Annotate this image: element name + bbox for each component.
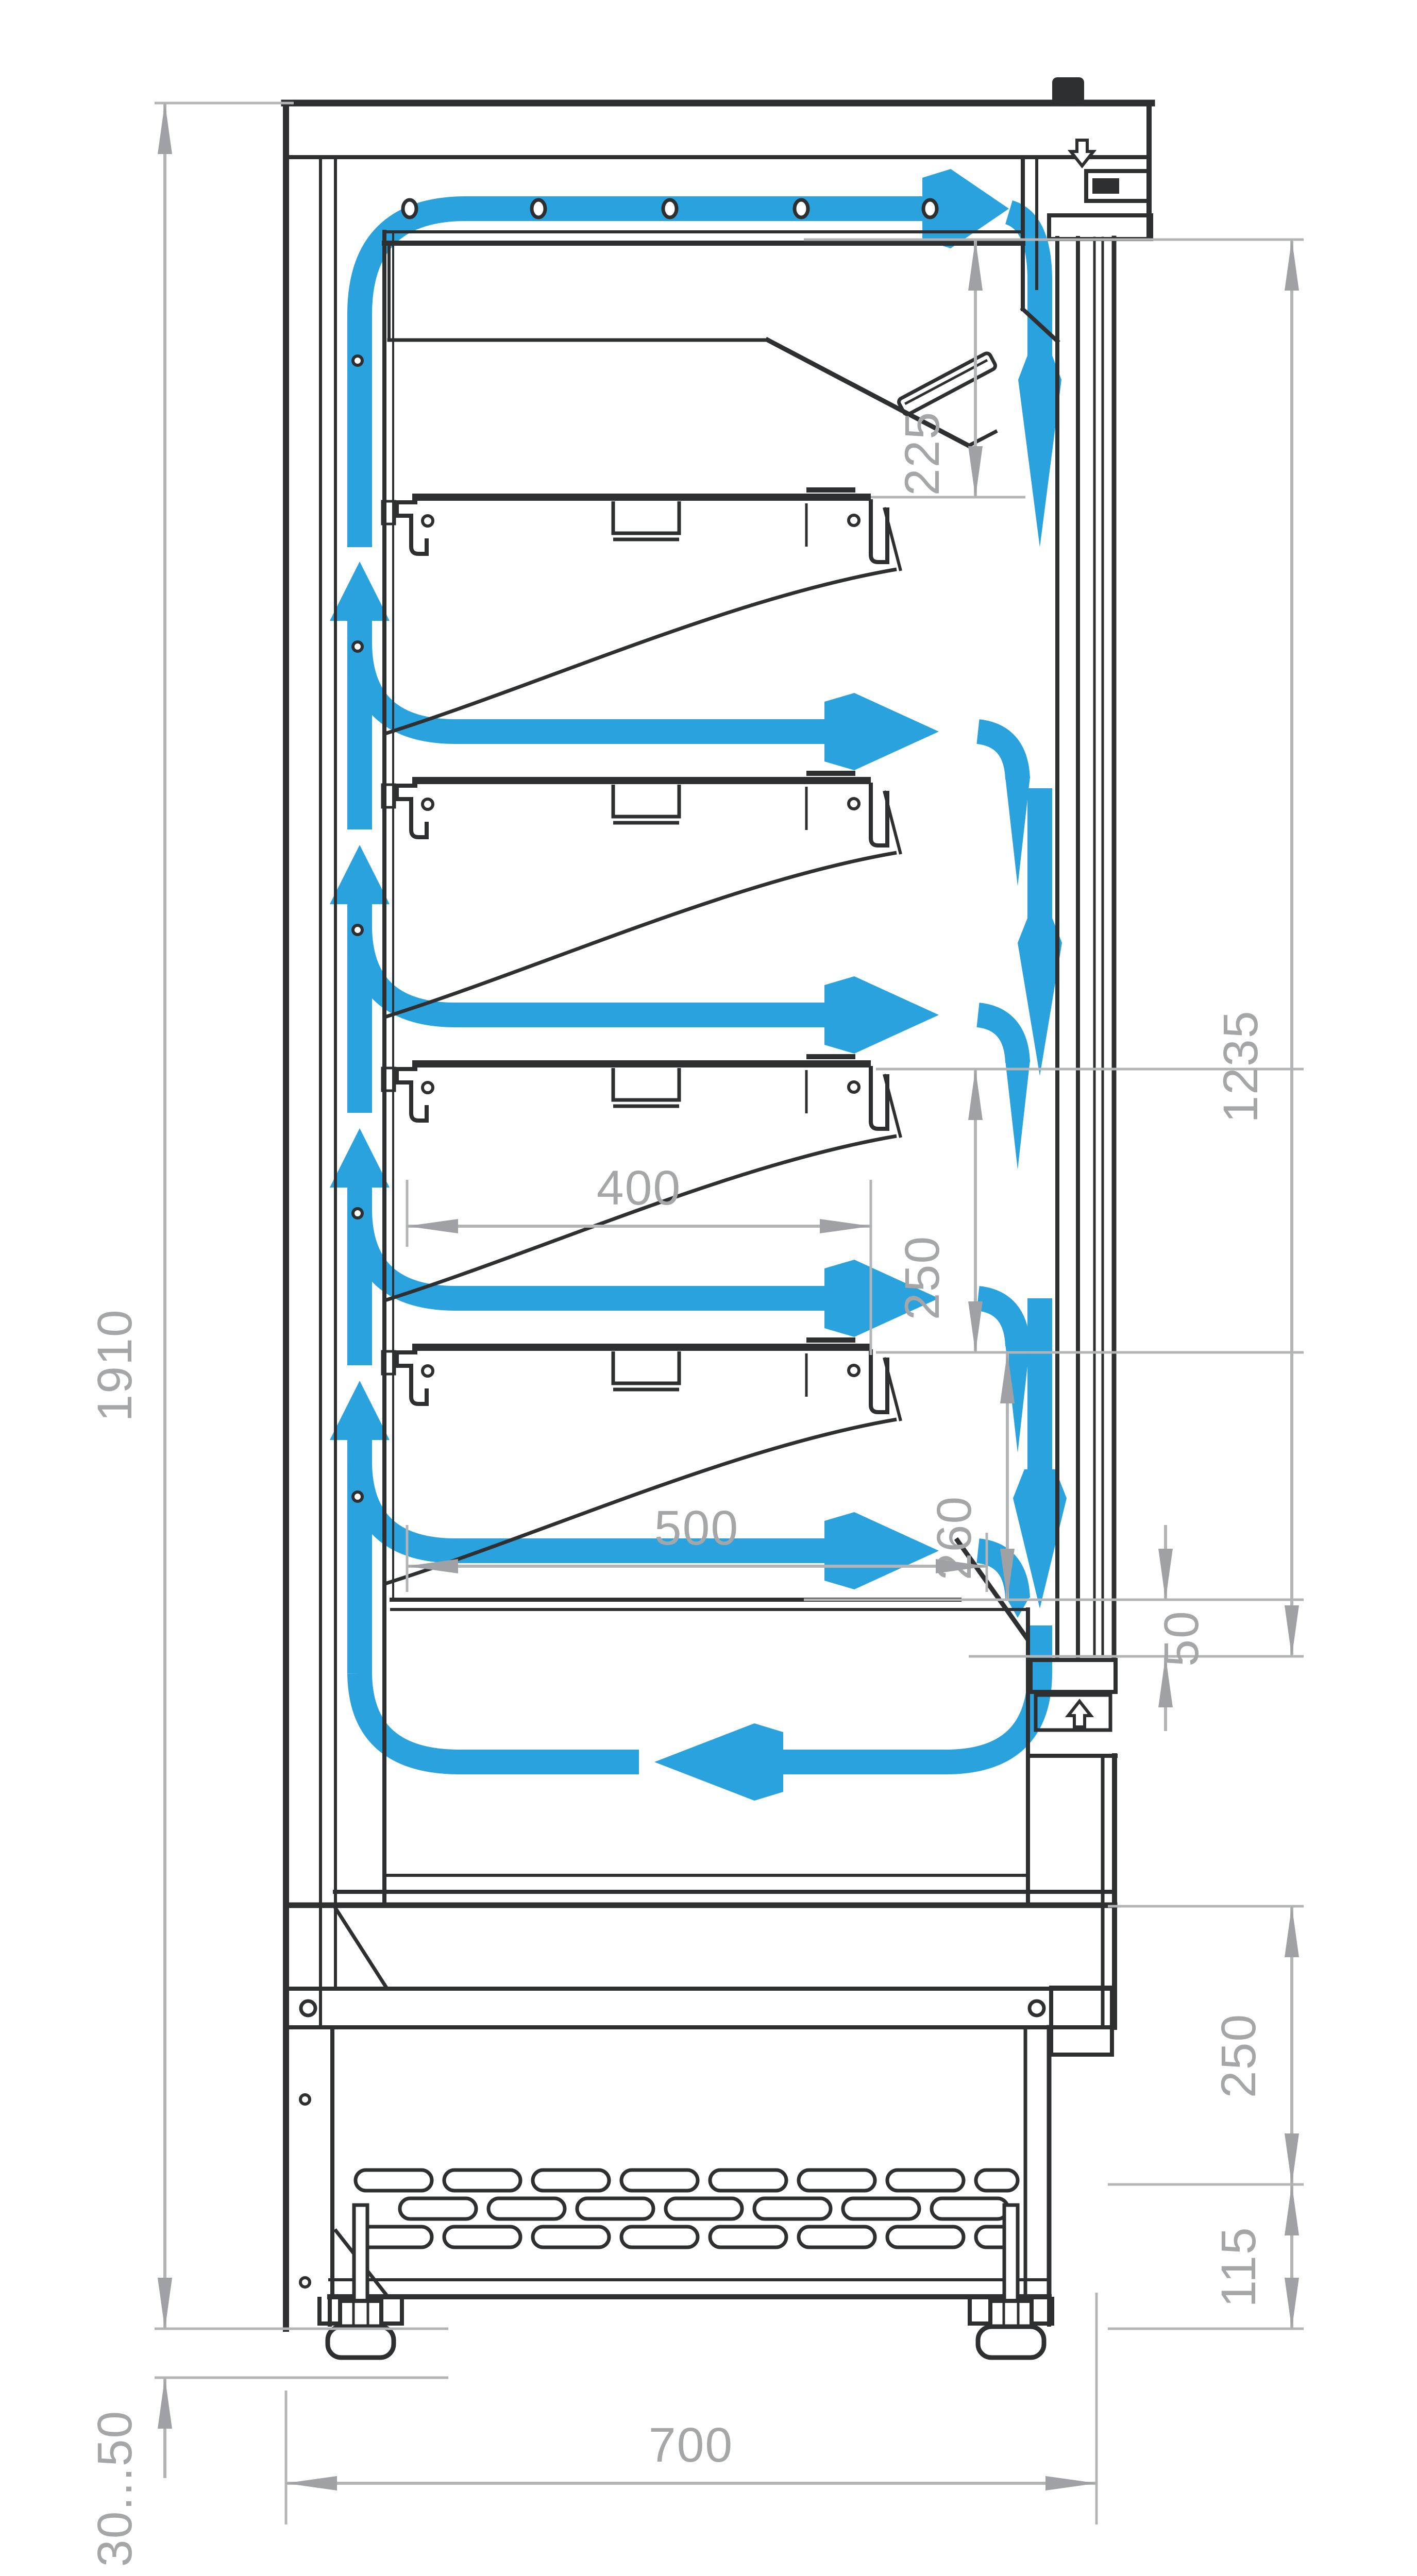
bottom-basin — [286, 1609, 1115, 2027]
grille-slot — [710, 2170, 786, 2191]
shelf-rear-hook — [397, 1069, 427, 1121]
grille-slot — [754, 2198, 831, 2219]
airflow-top-duct-arrow — [360, 169, 1061, 547]
screw-icon — [300, 2278, 310, 2287]
grille-slot — [932, 2198, 1008, 2219]
foot-nut — [340, 2301, 381, 2328]
grille-slot — [444, 2170, 520, 2191]
airflow-shelf-arrow — [360, 927, 1030, 1170]
dimension-label-intake-gap: 50 — [1154, 1610, 1209, 1667]
dimension-label-machine-height: 250 — [1211, 2013, 1266, 2098]
corner-brace — [336, 1909, 385, 1986]
grille-slot — [666, 2198, 742, 2219]
grille-slot — [488, 2198, 565, 2219]
perforation-hole — [923, 200, 937, 217]
diagram-stage: 1910 30...50 225 250 400 260 — [0, 0, 1417, 2576]
dim-shelf-spacing: 250 — [895, 1069, 975, 1352]
hinge-pin-arrow-icon — [1068, 1701, 1091, 1727]
machine-compartment — [289, 1909, 1115, 2325]
bracket-hole — [849, 1082, 859, 1092]
grille-slot — [356, 2170, 432, 2191]
grille-slot — [887, 2227, 964, 2247]
airflow-up-arrowhead — [330, 1381, 390, 1440]
dimension-label-canopy-to-shelf: 225 — [895, 411, 950, 496]
grille-slot — [577, 2198, 653, 2219]
dim-intake-gap: 50 — [1154, 1525, 1209, 1731]
panel-hole — [353, 642, 362, 651]
dim-overall-depth: 700 — [286, 2418, 1097, 2483]
bracket-hole — [423, 1082, 433, 1093]
foot-thread — [354, 2205, 367, 2303]
screw-icon — [1030, 2001, 1044, 2015]
shelf-clip — [613, 1068, 679, 1106]
dim-foot-range: 30...50 — [88, 2231, 165, 2567]
shelf-rear-hook — [397, 502, 427, 554]
dimension-label-shelf-depth: 400 — [597, 1161, 682, 1215]
bracket-hole — [849, 799, 859, 809]
perforation-hole — [532, 200, 545, 217]
grille-slot — [887, 2170, 964, 2191]
shelf-clip — [613, 785, 679, 823]
bracket-hole — [849, 515, 859, 526]
perforation-hole — [795, 200, 808, 217]
dimension-label-grille-height: 115 — [1211, 2226, 1266, 2307]
lamp-tube — [898, 352, 997, 416]
shelf-rear-hook — [397, 786, 427, 837]
airflow-up-arrowhead — [330, 845, 390, 904]
bracket-hole — [849, 1365, 859, 1376]
panel-hole — [353, 925, 362, 935]
panel-hole — [353, 1492, 362, 1501]
dim-door-opening: 1235 — [1213, 240, 1292, 1656]
rear-wall — [286, 103, 393, 2329]
cabinet-section-diagram: 1910 30...50 225 250 400 260 — [0, 0, 1417, 2576]
grille-slot — [976, 2170, 1018, 2191]
dim-overall-height: 1910 — [88, 103, 165, 2329]
airflow-up-arrowhead — [330, 562, 390, 621]
dimension-label-door-opening: 1235 — [1213, 1010, 1268, 1123]
grille-slot — [621, 2170, 698, 2191]
shelf-rear-hook — [397, 1352, 427, 1404]
foot-pad — [978, 2327, 1044, 2358]
dim-canopy-to-shelf: 225 — [895, 240, 975, 497]
panel-hole — [353, 356, 362, 365]
shelf-clip — [613, 501, 679, 539]
grille-slot — [621, 2227, 698, 2247]
sensor-wire — [383, 853, 897, 1018]
shelf — [382, 773, 901, 1018]
shelf — [382, 490, 901, 734]
airflow-shelf-arrows — [360, 644, 1030, 1618]
shelf-set — [382, 490, 901, 1584]
foot-thread — [1004, 2205, 1018, 2303]
bracket-hole — [423, 1366, 433, 1376]
airflow-shelf-arrow — [360, 644, 1030, 886]
glass-door — [1057, 238, 1114, 1656]
dim-machine-height: 250 — [1211, 1906, 1292, 2184]
dimension-label-overall-height: 1910 — [88, 1309, 142, 1421]
grille-slot — [843, 2198, 919, 2219]
dimension-label-shelf-spacing: 250 — [895, 1235, 950, 1320]
bracket-hole — [423, 799, 433, 809]
foot-nut — [990, 2301, 1032, 2328]
grille-slot — [710, 2227, 786, 2247]
cabinet-structure — [284, 77, 1152, 2358]
dimension-label-overall-depth: 700 — [649, 2418, 734, 2472]
bracket-hole — [423, 516, 433, 526]
dim-shelf-depth: 400 — [407, 1161, 871, 1226]
grille-slot — [533, 2170, 609, 2191]
dim-grille-height: 115 — [1211, 2184, 1292, 2329]
perforation-hole — [663, 200, 677, 217]
screw-icon — [300, 2095, 310, 2104]
grille-slot — [444, 2227, 520, 2247]
panel-hole — [353, 1209, 362, 1218]
foot-pad — [328, 2327, 394, 2358]
grille-slot — [799, 2227, 875, 2247]
dimension-label-deck-depth: 500 — [654, 1501, 739, 1555]
ventilation-grille — [356, 2170, 1018, 2247]
grille-slot — [400, 2198, 476, 2219]
grille-slot — [799, 2170, 875, 2191]
airflow-up-arrowhead — [330, 1128, 390, 1188]
screw-icon — [301, 2001, 315, 2015]
sensor-wire — [383, 569, 897, 734]
hinge-pin-arrow-icon — [1071, 140, 1093, 166]
perforation-hole — [403, 200, 416, 217]
dimension-label-foot-range: 30...50 — [88, 2410, 142, 2567]
shelf-clip — [613, 1351, 679, 1389]
grille-slot — [533, 2227, 609, 2247]
airflow-bottom-return-arrow — [360, 1625, 1040, 1801]
